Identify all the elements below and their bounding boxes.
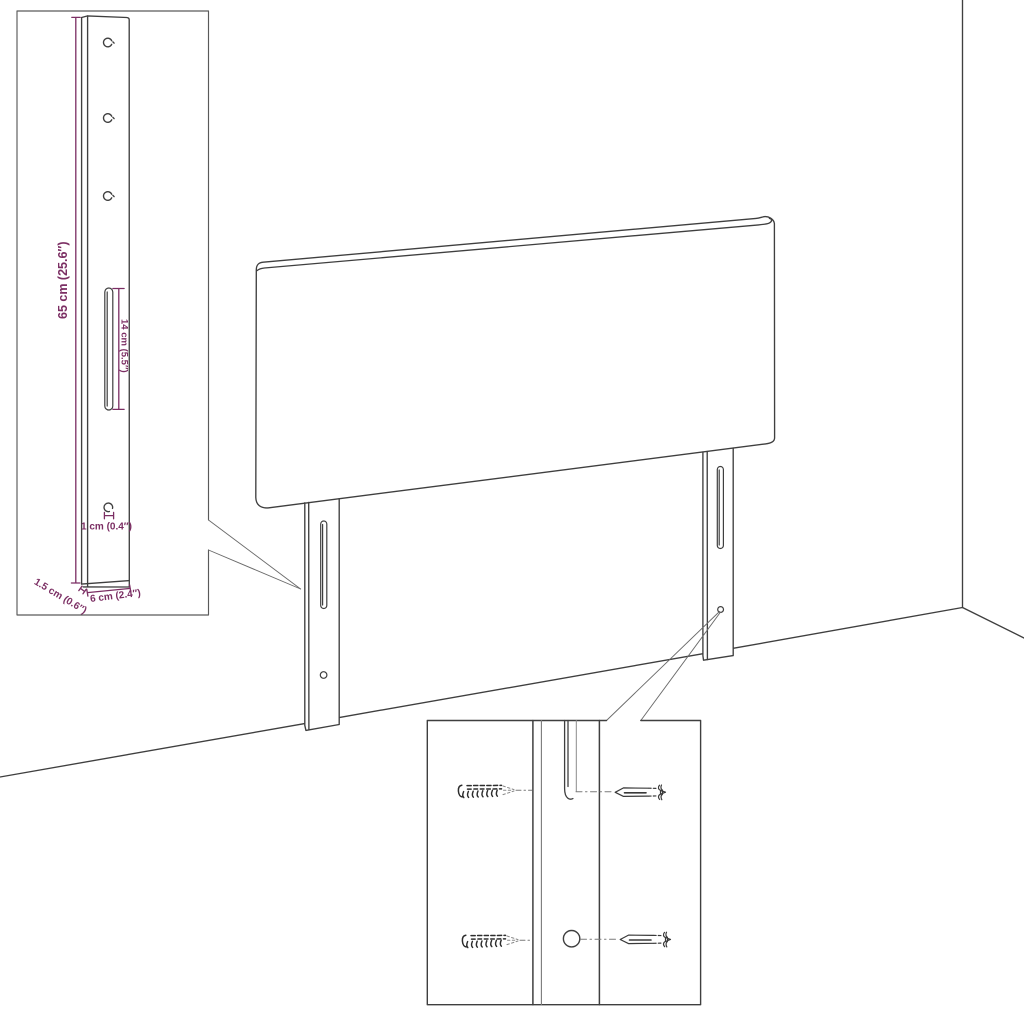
svg-text:6 cm (2.4″): 6 cm (2.4″): [90, 588, 142, 605]
svg-text:14 cm (5.5″): 14 cm (5.5″): [119, 319, 130, 373]
svg-text:1 cm (0.4″): 1 cm (0.4″): [81, 522, 132, 533]
svg-text:65 cm (25.6″): 65 cm (25.6″): [56, 241, 70, 319]
